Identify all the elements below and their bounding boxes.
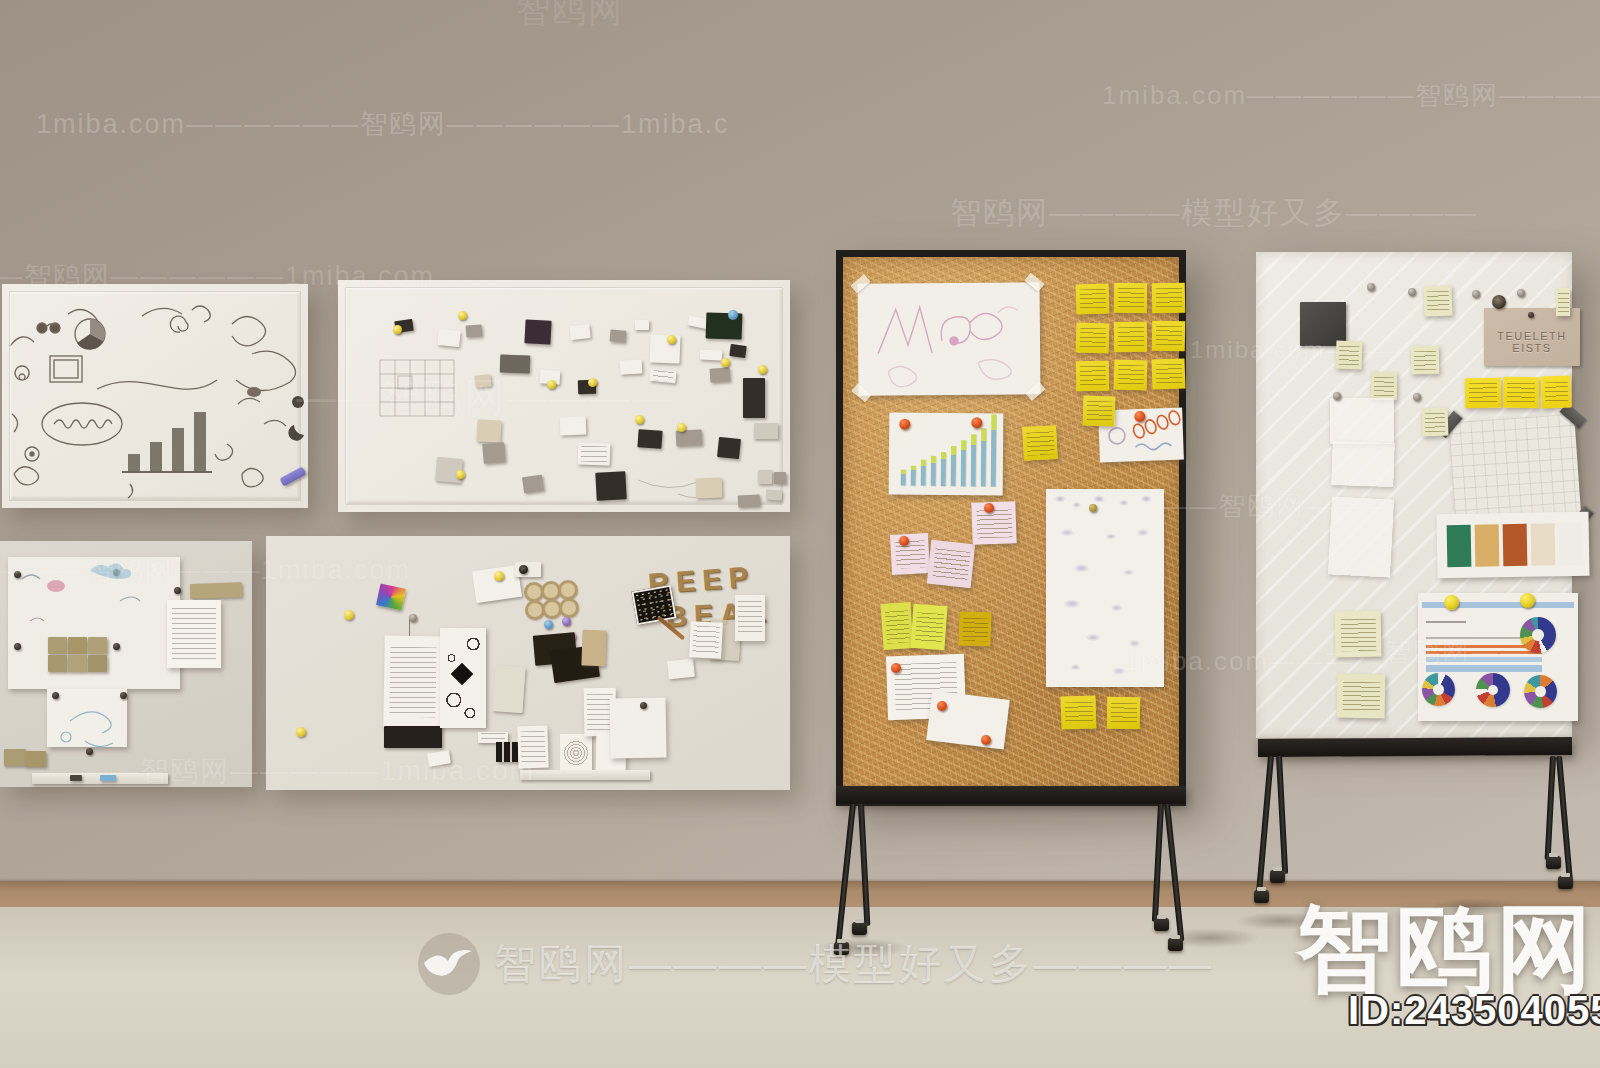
red-pin [899,419,910,430]
cloud-pinboard [0,541,252,787]
prop-item [466,324,483,337]
dark-pattern-strip [384,726,442,748]
prop-item [482,442,506,464]
prop-item [562,617,571,626]
prop-item [927,540,975,588]
prop-item [899,536,909,546]
prop-item [738,494,761,507]
donut-chart [1520,617,1556,653]
prop-item [774,472,786,484]
gauge-drawing [560,734,592,772]
prop-item [581,630,606,667]
prop-item [676,429,703,446]
prop-item [689,621,723,659]
easel-leg [858,804,870,926]
prop-item [1022,425,1058,461]
color-swatch [1447,525,1472,567]
doodle-whiteboard [2,284,308,508]
prop-item [544,620,553,629]
red-pin [971,417,982,428]
prop-item [1371,372,1397,400]
prop-item [981,735,991,745]
prop-item [717,437,741,459]
yellow-ball-pin [1520,593,1535,608]
prop-item [1114,283,1148,314]
prop-item [558,580,578,600]
prop-item [494,571,504,581]
prop-item [620,359,643,374]
chart-bar [971,434,976,486]
footer-watermark: 智鸥网————模型好又多———— [418,933,1214,995]
prop-item [667,659,695,680]
prop-item [758,365,767,374]
prop-item [1075,283,1109,314]
prop-item [890,533,930,575]
prop-item [578,442,611,465]
prop-item [474,374,491,388]
prop-item [637,429,662,449]
prop-item [1082,395,1115,426]
prop-item [1152,321,1186,352]
prop-item [1337,674,1386,719]
donut-row [1418,593,1578,721]
marker-doodles [2,284,308,508]
prop-item [456,470,465,479]
color-swatch-card [1436,512,1589,579]
prop-item [476,419,501,442]
chart-bar [931,456,936,486]
gull-logo-icon [418,933,480,995]
prop-item [937,701,947,711]
chart-bar [991,414,997,486]
prop-item [1076,361,1110,392]
donut-chart [1422,673,1455,706]
hanging-document [383,636,443,729]
chart-bar [941,452,946,486]
chart-bar [921,460,926,486]
caster-wheel [1254,890,1269,903]
prop-item [971,501,1016,545]
metal-knob [1492,295,1506,309]
donut-chart [1524,675,1557,708]
cloud-bird-sketches [0,541,252,787]
camera-lens [519,565,528,574]
easel-leg [1152,804,1164,922]
prop-item [766,489,783,500]
prop-item [559,598,579,618]
prop-item [517,725,548,768]
prop-item [1113,359,1147,390]
card-pinboard [338,280,790,512]
prop-item [667,335,676,344]
prop-item [1408,288,1416,296]
prop-item [1336,341,1363,370]
prop-item [547,380,556,389]
prop-item [595,471,626,501]
prop-item [1330,398,1394,444]
prop-item [1423,286,1452,317]
prop-item [891,663,901,673]
donut-chart [1476,673,1510,707]
prop-item [743,378,765,418]
chart-bar [911,466,916,486]
color-swatch [1559,523,1584,565]
easel-leg [1276,756,1288,874]
framed-mosaic [631,585,676,625]
prop-item [700,349,722,360]
prop-item [635,320,649,330]
footer-watermark-text: 智鸥网————模型好又多———— [494,936,1214,992]
watermark-text: 1miba.com——————智鸥网——————1miba.c [36,106,730,142]
color-swatch [1503,524,1528,566]
pink-sketch-paper [858,282,1041,396]
prop-item [721,358,730,367]
prop-item [409,614,417,622]
tan-embossed-card: TEUELETH EISTS [1484,308,1580,366]
prop-item [1328,496,1394,577]
image-id-text: ID:243504055 [1348,988,1600,1033]
prop-item [524,319,551,344]
prop-item [677,423,686,432]
prop-item [911,604,948,650]
chart-bar [901,470,906,486]
rainbow-pinwheel [376,584,406,611]
chart-bar [961,440,966,486]
prop-item [1540,375,1571,408]
color-swatch [1475,524,1500,566]
swatch-row [1436,512,1589,579]
prop-item [729,344,747,358]
prop-item [754,423,778,439]
prop-item [1503,377,1540,409]
purple-diagram-paper [1046,489,1164,687]
reep-beal-board: REEP BEAL [266,536,790,790]
caster-wheel [1154,918,1169,931]
white-easel-board: TEUELETH EISTS [1256,252,1572,738]
prop-item [758,470,772,484]
paper-tag [427,750,451,767]
drawing-paper [609,698,666,759]
prop-item [393,325,402,334]
prop-item [1472,290,1480,298]
yellow-ball-pin [1444,595,1459,610]
prop-item [649,369,676,384]
bar-chart-paper [889,413,1004,496]
cork-easel-board [836,250,1186,806]
color-swatch [1531,523,1556,565]
prop-item [1152,283,1186,314]
prop-item [1335,611,1382,658]
donut-chart-paper [1418,593,1578,721]
dark-window [1300,302,1346,346]
embossed-text: TEUELETH EISTS [1484,330,1580,354]
prop-item [1114,322,1148,353]
prop-item [458,311,467,320]
prop-item [728,310,738,320]
easel-legs [1258,756,1572,906]
chart-bar [951,446,956,486]
easel-bottom-bar [1258,737,1572,757]
easel-leg [1545,756,1556,860]
easel-legs [836,804,1186,954]
prop-item [500,354,531,373]
prop-item [569,324,590,340]
prop-item [1331,441,1394,487]
watermark-text: 1miba.com——————智鸥网————— [1102,78,1600,113]
prop-item [344,610,354,620]
prop-item [1413,393,1421,401]
caster-wheel [1270,870,1285,883]
prop-item [1333,392,1341,400]
prop-item [696,478,723,499]
prop-item [1089,504,1097,512]
prop-item [588,378,597,387]
prop-item [1556,288,1570,316]
prop-item [1411,346,1439,374]
prop-item [610,329,627,342]
prop-item [958,611,991,646]
black-white-collage [440,628,486,728]
prop-item [1151,358,1185,389]
prop-item [296,727,306,737]
prop-item [635,415,644,424]
easel-bottom-bar [836,786,1186,804]
prop-item [640,702,647,709]
prop-item [1075,322,1109,353]
chart-bar [981,428,987,486]
prop-item [1422,408,1449,437]
scene: REEP BEAL [0,0,1600,1068]
prop-item [437,329,461,347]
watermark-text: 智鸥网————模型好又多———— [950,192,1478,234]
prop-item [522,475,544,494]
prop-item [926,690,1010,749]
prop-item [560,417,587,436]
prop-item [1107,697,1141,730]
prop-item [1517,289,1525,297]
prop-item [984,503,994,513]
caster-wheel [1546,856,1561,869]
prop-item [735,595,765,641]
prop-item [1367,283,1375,291]
pen-tray [520,770,650,780]
prop-item [1465,378,1502,409]
prop-item [710,367,731,382]
prop-item [492,665,525,713]
prop-item [880,602,913,650]
dark-pin [1528,312,1534,318]
prop-item [1060,695,1096,729]
watermark-text: 智鸥网 [516,0,624,34]
